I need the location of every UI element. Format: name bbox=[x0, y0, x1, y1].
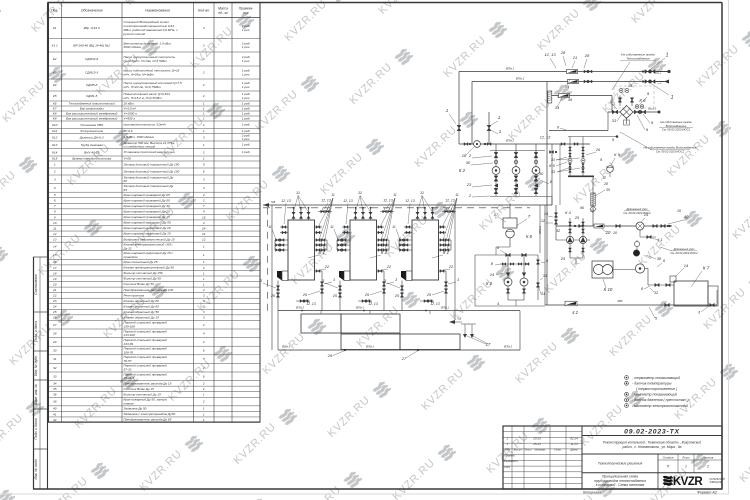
svg-text:производительность 3,0м³/ч: производительность 3,0м³/ч bbox=[124, 123, 167, 127]
svg-text:42: 42 bbox=[53, 418, 57, 422]
svg-text:Ø76к.3: Ø76к.3 bbox=[503, 346, 513, 349]
svg-text:Г1В: Г1В bbox=[457, 317, 462, 321]
svg-text:Лист: Лист bbox=[681, 455, 690, 459]
svg-text:1 рез.: 1 рез. bbox=[242, 59, 250, 63]
svg-text:1: 1 bbox=[203, 123, 205, 127]
svg-text:21: 21 bbox=[52, 288, 57, 292]
svg-text:5: 5 bbox=[203, 163, 205, 167]
svg-text:KVZR: KVZR bbox=[673, 476, 704, 488]
svg-text:V=500 л: V=500 л bbox=[124, 116, 136, 120]
svg-text:35: 35 bbox=[606, 188, 610, 192]
svg-text:Г1В: Г1В bbox=[271, 200, 276, 204]
svg-text:КВр -0,63 К: КВр -0,63 К bbox=[84, 26, 100, 30]
svg-text:СДМ32-6: СДМ32-6 bbox=[85, 57, 98, 61]
svg-text:22: 22 bbox=[52, 294, 57, 298]
svg-text:80: 80 bbox=[124, 179, 128, 183]
svg-text:- датчик давления ( прессост: - датчик давления ( прессостат ) bbox=[632, 398, 689, 402]
svg-text:21: 21 bbox=[201, 232, 206, 236]
svg-text:- датчик температуры: - датчик температуры bbox=[632, 382, 672, 386]
svg-text:13: 13 bbox=[53, 237, 57, 241]
svg-text:Установка приточной вентиляции: Установка приточной вентиляции bbox=[124, 150, 176, 154]
svg-text:18 кВт: 18 кВт bbox=[124, 101, 135, 105]
svg-text:18: 18 bbox=[53, 271, 57, 275]
svg-text:К 1: К 1 bbox=[319, 250, 325, 255]
svg-text:Инв. № подл.: Инв. № подл. bbox=[34, 458, 38, 479]
svg-text:1 рез.: 1 рез. bbox=[242, 28, 250, 32]
svg-text:Стадия: Стадия bbox=[663, 455, 674, 459]
svg-text:1: 1 bbox=[54, 163, 56, 167]
svg-text:12, 13: 12, 13 bbox=[368, 302, 378, 306]
svg-text:ние: ние bbox=[243, 11, 249, 15]
svg-text:76-57: 76-57 bbox=[124, 359, 132, 363]
svg-text:Реконструкция котельной , Тюме: Реконструкция котельной , Тюменская обла… bbox=[603, 441, 701, 445]
svg-text:2: 2 bbox=[202, 94, 205, 98]
svg-text:Ø57к.3: Ø57к.3 bbox=[539, 226, 542, 235]
svg-text:14: 14 bbox=[53, 245, 57, 249]
svg-text:1: 1 bbox=[203, 407, 205, 411]
svg-text:Клапан предохранительный Ду 50: Клапан предохранительный Ду 50 bbox=[124, 266, 175, 270]
svg-text:40: 40 bbox=[684, 215, 689, 220]
svg-text:25: 25 bbox=[332, 294, 338, 298]
svg-text:Кран поливочный Ду 25: Кран поливочный Ду 25 bbox=[124, 260, 158, 264]
svg-text:2: 2 bbox=[202, 340, 205, 344]
svg-text:в котельной . Схема тепловая: в котельной . Схема тепловая bbox=[596, 483, 645, 487]
svg-text:К12: К12 bbox=[52, 135, 58, 139]
svg-text:Теплообменник пластинчатый: Теплообменник пластинчатый bbox=[69, 102, 115, 106]
svg-text:11: 11 bbox=[268, 225, 272, 229]
svg-text:1: 1 bbox=[203, 418, 205, 422]
svg-text:2: 2 bbox=[202, 366, 205, 370]
svg-text:3: 3 bbox=[203, 57, 205, 61]
svg-text:1: 1 bbox=[203, 112, 205, 116]
svg-text:16: 16 bbox=[53, 260, 57, 264]
svg-text:24: 24 bbox=[52, 305, 57, 309]
svg-text:8: 8 bbox=[54, 210, 56, 214]
svg-text:25-23: 25-23 bbox=[532, 442, 541, 446]
svg-text:7: 7 bbox=[203, 204, 205, 208]
svg-text:Ø76к.2: Ø76к.2 bbox=[505, 140, 515, 143]
svg-text:25: 25 bbox=[394, 294, 400, 298]
svg-text:Затвор дисковый поворотный Ду: Затвор дисковый поворотный Ду bbox=[124, 184, 174, 188]
svg-text:38: 38 bbox=[53, 400, 57, 404]
svg-text:30: 30 bbox=[53, 349, 57, 353]
svg-text:район , с. Нововяткина , ул. М: район , с. Нововяткина , ул. Мира , 9а bbox=[622, 445, 682, 449]
svg-text:12, 13: 12, 13 bbox=[544, 52, 556, 57]
svg-text:ед., кг: ед., кг bbox=[218, 11, 228, 15]
svg-text:12: 12 bbox=[53, 232, 57, 236]
svg-text:V=3,0 м³: V=3,0 м³ bbox=[124, 106, 137, 110]
svg-text:28: 28 bbox=[603, 182, 608, 186]
svg-text:ГИП: ГИП bbox=[504, 465, 511, 469]
svg-text:Ду 32: Ду 32 bbox=[123, 246, 132, 250]
svg-text:25: 25 bbox=[302, 293, 308, 297]
svg-text:ручной топкой: ручной топкой bbox=[123, 32, 146, 36]
svg-text:Ø76к.1: Ø76к.1 bbox=[355, 307, 365, 310]
svg-text:1: 1 bbox=[671, 95, 674, 101]
svg-text:Бак запаса воды: Бак запаса воды bbox=[80, 107, 105, 111]
svg-text:Задвижка Ду 50: Задвижка Ду 50 bbox=[124, 407, 147, 411]
svg-text:приводом: приводом bbox=[124, 255, 139, 259]
svg-text:1: 1 bbox=[203, 277, 205, 281]
svg-text:Поз.: Поз. bbox=[51, 9, 58, 13]
svg-text:4: 4 bbox=[497, 302, 499, 306]
svg-text:Кран шаровый приварной Ду 65: Кран шаровый приварной Ду 65 bbox=[124, 193, 171, 197]
svg-text:29: 29 bbox=[52, 340, 57, 344]
svg-text:12: 12 bbox=[602, 176, 606, 180]
svg-text:Инв. № дубл.: Инв. № дубл. bbox=[34, 355, 38, 376]
svg-text:Фильтр сетчатый Ду 50: Фильтр сетчатый Ду 50 bbox=[124, 277, 162, 281]
svg-text:№докум.: №докум. bbox=[534, 448, 545, 452]
svg-text:К 1: К 1 bbox=[381, 250, 387, 255]
svg-text:К 7: К 7 bbox=[703, 266, 710, 271]
svg-text:2: 2 bbox=[202, 150, 205, 154]
svg-text:26: 26 bbox=[595, 148, 601, 152]
svg-text:Ø76к.1: Ø76к.1 bbox=[505, 67, 515, 71]
svg-text:11: 11 bbox=[420, 191, 424, 195]
svg-text:28: 28 bbox=[52, 331, 57, 335]
svg-text:11.23: 11.23 bbox=[570, 442, 578, 446]
svg-text:Кол.уч.: Кол.уч. bbox=[514, 448, 523, 452]
svg-text:Клапан обратный Ду 65: Клапан обратный Ду 65 bbox=[124, 304, 160, 308]
svg-text:02.24: 02.24 bbox=[570, 436, 578, 440]
svg-text:57-32: 57-32 bbox=[124, 368, 132, 372]
svg-text:96: 96 bbox=[580, 206, 584, 210]
svg-text:Преобразователь расхода Ду 100: Преобразователь расхода Ду 100 bbox=[124, 288, 174, 292]
svg-text:11: 11 bbox=[331, 193, 335, 197]
svg-text:4: 4 bbox=[54, 186, 56, 190]
svg-text:Затвор дисковый поворотный Ду: Затвор дисковый поворотный Ду 100 bbox=[124, 169, 180, 173]
svg-text:1: 1 bbox=[203, 271, 205, 275]
svg-text:23: 23 bbox=[52, 299, 57, 303]
svg-text:К3: К3 bbox=[53, 71, 57, 75]
svg-text:6: 6 bbox=[54, 199, 56, 203]
svg-text:27: 27 bbox=[52, 323, 57, 327]
svg-text:25-21,3: 25-21,3 bbox=[123, 376, 135, 380]
svg-text:2: 2 bbox=[202, 193, 205, 197]
svg-text:11: 11 bbox=[296, 191, 300, 195]
svg-text:Кран шаровый муфтовый Ду 15: Кран шаровый муфтовый Ду 15 bbox=[124, 232, 171, 236]
svg-text:Дымосос ДН-6,3: Дымосос ДН-6,3 bbox=[79, 135, 104, 139]
svg-text:2: 2 bbox=[706, 465, 709, 469]
svg-text:28: 28 bbox=[560, 50, 566, 55]
svg-text:ВР 280-46 (ВЦ 14-46) №2: ВР 280-46 (ВЦ 14-46) №2 bbox=[73, 43, 110, 47]
svg-text:Разработ.: Разработ. bbox=[504, 459, 519, 463]
svg-text:25: 25 bbox=[52, 310, 57, 314]
svg-text:1 раб.: 1 раб. bbox=[242, 143, 251, 147]
svg-text:2: 2 bbox=[202, 199, 205, 203]
svg-text:Взам. инв. №: Взам. инв. № bbox=[34, 384, 38, 405]
svg-text:12, 13: 12, 13 bbox=[343, 199, 353, 203]
svg-text:25: 25 bbox=[426, 293, 432, 297]
svg-text:Наименование: Наименование bbox=[145, 9, 170, 13]
svg-text:30: 30 bbox=[539, 171, 544, 176]
svg-text:м³/ч, Н=20,1м, N=0,75кВт: м³/ч, Н=20,1м, N=0,75кВт bbox=[124, 85, 162, 89]
svg-text:17: 17 bbox=[486, 342, 491, 347]
svg-text:- манометр электроконтактный: - манометр электроконтактный bbox=[632, 404, 688, 408]
svg-text:2: 2 bbox=[202, 400, 205, 404]
svg-text:Листов: Листов bbox=[702, 455, 714, 459]
svg-text:4: 4 bbox=[203, 186, 205, 190]
svg-text:4 1: 4 1 bbox=[657, 237, 663, 242]
svg-text:1: 1 bbox=[203, 143, 205, 147]
svg-text:2: 2 bbox=[202, 387, 205, 391]
svg-text:1: 1 bbox=[203, 129, 205, 133]
svg-text:5: 5 bbox=[54, 193, 56, 197]
svg-text:Кран шаровый приварной Ду 40: Кран шаровый приварной Ду 40 bbox=[124, 204, 171, 208]
svg-text:V=1000 л: V=1000 л bbox=[124, 111, 138, 115]
svg-text:Кран шаровый муфтовый Ду 20: Кран шаровый муфтовый Ду 20 bbox=[124, 226, 171, 230]
svg-text:См. 09.02-2023-ИОС2: См. 09.02-2023-ИОС2 bbox=[623, 211, 651, 215]
svg-text:1: 1 bbox=[203, 117, 205, 121]
svg-text:33: 33 bbox=[551, 170, 555, 174]
svg-text:11: 11 bbox=[455, 193, 459, 197]
svg-text:5: 5 bbox=[203, 357, 205, 361]
svg-text:32: 32 bbox=[53, 366, 57, 370]
svg-text:- термометр показывающий: - термометр показывающий bbox=[632, 376, 680, 380]
svg-text:19: 19 bbox=[53, 277, 57, 281]
svg-text:1: 1 bbox=[203, 260, 205, 264]
svg-text:Дата: Дата bbox=[569, 448, 578, 452]
svg-text:Øхх1,6: Øхх1,6 bbox=[647, 107, 656, 110]
svg-text:36: 36 bbox=[568, 97, 573, 102]
svg-text:28: 28 bbox=[584, 53, 590, 58]
svg-text:1 раб.: 1 раб. bbox=[242, 106, 251, 110]
svg-text:4: 4 bbox=[203, 331, 205, 335]
svg-text:7: 7 bbox=[54, 204, 56, 208]
svg-text:3: 3 bbox=[203, 135, 205, 139]
svg-text:30: 30 bbox=[466, 160, 471, 165]
svg-text:4,5 кВт, 1500 об/мин: 4,5 кВт, 1500 об/мин bbox=[124, 135, 155, 139]
svg-text:1: 1 bbox=[203, 253, 205, 257]
svg-text:Ø76к.2: Ø76к.2 bbox=[515, 77, 525, 81]
svg-text:1 раб.: 1 раб. bbox=[242, 150, 251, 154]
svg-text:К 4: К 4 bbox=[565, 210, 571, 215]
svg-text:6: 6 bbox=[203, 374, 205, 378]
svg-text:1 рез.: 1 рез. bbox=[242, 85, 250, 89]
svg-text:К2: К2 bbox=[53, 57, 57, 61]
svg-text:3: 3 bbox=[203, 316, 205, 320]
svg-text:Бак расширительный мембранный: Бак расширительный мембранный bbox=[66, 112, 118, 116]
svg-text:Ø89к.3: Ø89к.3 bbox=[281, 346, 291, 349]
svg-text:См. 09.02-2023-ИОС2: См. 09.02-2023-ИОС2 bbox=[656, 150, 685, 154]
svg-text:159-108: 159-108 bbox=[124, 325, 136, 329]
svg-text:Ø76к.1: Ø76к.1 bbox=[440, 307, 450, 310]
svg-text:Бак расширительный мембранный: Бак расширительный мембранный bbox=[66, 117, 118, 121]
svg-text:Q=32,5м³/ч, Н=13м, N=3,5кВт: Q=32,5м³/ч, Н=13м, N=3,5кВт bbox=[124, 59, 168, 63]
svg-text:9: 9 bbox=[54, 215, 56, 219]
svg-text:СДМ1-5: СДМ1-5 bbox=[86, 94, 98, 98]
svg-text:Кран шаровый приварной Ду 15: Кран шаровый приварной Ду 15 bbox=[124, 215, 171, 219]
svg-text:133-108: 133-108 bbox=[124, 333, 136, 337]
svg-text:31: 31 bbox=[53, 357, 57, 361]
svg-text:12, 13: 12, 13 bbox=[306, 302, 316, 306]
svg-text:15: 15 bbox=[53, 253, 57, 257]
svg-text:Подп. и дата: Подп. и дата bbox=[34, 418, 38, 439]
svg-text:1 рез.: 1 рез. bbox=[242, 96, 250, 100]
svg-text:18: 18 bbox=[462, 153, 467, 158]
svg-text:1 раб.: 1 раб. bbox=[242, 123, 251, 127]
svg-text:133-89: 133-89 bbox=[124, 342, 134, 346]
svg-text:3: 3 bbox=[203, 177, 205, 181]
svg-text:Кран шаровый приварной Ду 50: Кран шаровый приварной Ду 50 bbox=[124, 198, 171, 202]
svg-text:1 рез.: 1 рез. bbox=[242, 45, 250, 49]
svg-text:К15: К15 bbox=[52, 157, 58, 161]
svg-text:1: 1 bbox=[203, 107, 205, 111]
svg-text:20: 20 bbox=[52, 282, 57, 286]
svg-text:Преобразователь расхода Ду 65: Преобразователь расхода Ду 65 bbox=[124, 418, 172, 422]
svg-text:К 3: К 3 bbox=[486, 281, 493, 286]
svg-text:Ø76к.1: Ø76к.1 bbox=[365, 346, 375, 349]
svg-text:Клапан обратный Ду 15: Клапан обратный Ду 15 bbox=[124, 316, 160, 320]
svg-text:Ø89: Ø89 bbox=[617, 300, 623, 303]
svg-text:3: 3 bbox=[54, 177, 56, 181]
svg-text:Обозначение: Обозначение bbox=[81, 9, 103, 13]
svg-text:11: 11 bbox=[330, 225, 334, 229]
svg-text:Согласовано: Согласовано bbox=[34, 274, 38, 295]
svg-text:22: 22 bbox=[386, 265, 392, 269]
svg-text:4: 4 bbox=[203, 210, 205, 214]
svg-text:Затвор дисковый поворотный Ду: Затвор дисковый поворотный Ду 150 bbox=[124, 162, 180, 166]
svg-text:Золоуловитель: Золоуловитель bbox=[80, 129, 103, 133]
svg-text:14: 14 bbox=[684, 263, 689, 268]
svg-text:Фильтр сетчатый Ду 150: Фильтр сетчатый Ду 150 bbox=[124, 271, 163, 275]
svg-text:К5: К5 bbox=[53, 94, 57, 98]
svg-text:К4: К4 bbox=[53, 83, 57, 87]
svg-text:33: 33 bbox=[612, 118, 617, 123]
svg-text:65: 65 bbox=[124, 188, 128, 192]
svg-text:12, 13: 12, 13 bbox=[405, 199, 415, 203]
svg-text:3: 3 bbox=[203, 26, 205, 30]
svg-text:Установка ХВО: Установка ХВО bbox=[80, 123, 104, 127]
svg-text:Копировал: Копировал bbox=[583, 491, 601, 495]
svg-text:К9: К9 bbox=[53, 117, 57, 121]
svg-text:12, 13: 12, 13 bbox=[540, 136, 551, 140]
svg-text:Лист: Лист bbox=[524, 448, 533, 452]
svg-text:6: 6 bbox=[203, 170, 205, 174]
svg-text:Реле протока: Реле протока bbox=[124, 293, 145, 297]
svg-text:См. 09.02-2023-ИОС2: См. 09.02-2023-ИОС2 bbox=[670, 251, 698, 255]
svg-text:34: 34 bbox=[555, 105, 560, 110]
svg-text:2: 2 bbox=[202, 323, 205, 327]
svg-text:1 рез.: 1 рез. bbox=[242, 137, 250, 141]
svg-text:1: 1 bbox=[203, 393, 205, 397]
svg-text:12: 12 bbox=[202, 237, 206, 241]
svg-text:4 2: 4 2 bbox=[572, 310, 578, 315]
svg-text:К 9: К 9 bbox=[614, 152, 620, 157]
svg-text:16: 16 bbox=[202, 215, 206, 219]
svg-text:Технологические решения: Технологические решения bbox=[598, 462, 643, 466]
svg-text:3: 3 bbox=[203, 310, 205, 314]
svg-text:12, 13: 12, 13 bbox=[321, 199, 331, 203]
svg-text:1: 1 bbox=[685, 465, 687, 469]
svg-text:2: 2 bbox=[202, 381, 205, 385]
svg-text:108-76: 108-76 bbox=[124, 350, 134, 354]
svg-text:- манометр показывающий: - манометр показывающий bbox=[632, 393, 677, 397]
svg-text:1: 1 bbox=[203, 157, 205, 161]
svg-text:ЗАВОД.РФ: ЗАВОД.РФ bbox=[710, 481, 722, 484]
svg-text:1: 1 bbox=[203, 412, 205, 416]
svg-text:Изм.: Изм. bbox=[505, 448, 511, 452]
svg-text:33: 33 bbox=[551, 158, 555, 162]
svg-text:1 раб.: 1 раб. bbox=[242, 101, 251, 105]
svg-text:2: 2 bbox=[53, 170, 56, 174]
svg-text:2: 2 bbox=[202, 83, 205, 87]
svg-text:1: 1 bbox=[666, 53, 669, 59]
svg-text:10: 10 bbox=[53, 221, 57, 225]
svg-text:29: 29 bbox=[327, 353, 333, 358]
svg-text:2: 2 bbox=[506, 436, 509, 440]
svg-text:К14: К14 bbox=[52, 150, 58, 154]
svg-text:31: 31 bbox=[541, 291, 545, 296]
svg-text:Воздушник автоматический Ду 15: Воздушник автоматический Ду 15 bbox=[124, 237, 175, 241]
svg-text:Клапан обратный Ду 80: Клапан обратный Ду 80 bbox=[124, 299, 160, 303]
svg-text:Клапан обратный Ду 50: Клапан обратный Ду 50 bbox=[124, 310, 160, 314]
svg-text:11: 11 bbox=[393, 193, 397, 197]
svg-text:24: 24 bbox=[201, 226, 206, 230]
svg-text:Подп.: Подп. bbox=[554, 448, 561, 452]
svg-text:40: 40 bbox=[53, 407, 57, 411]
svg-text:К6: К6 bbox=[53, 102, 57, 106]
svg-text:4: 4 bbox=[203, 221, 205, 225]
svg-text:2: 2 bbox=[202, 305, 205, 309]
svg-text:2: 2 bbox=[202, 266, 205, 270]
svg-text:К 1: К 1 bbox=[443, 250, 449, 255]
svg-text:клапан: клапан bbox=[124, 401, 134, 405]
svg-text:25: 25 bbox=[574, 216, 580, 220]
svg-text:ЗУ-0,6: ЗУ-0,6 bbox=[124, 129, 133, 133]
svg-text:1 раб.: 1 раб. bbox=[242, 111, 251, 115]
svg-text:12, 13: 12, 13 bbox=[281, 199, 291, 203]
svg-text:СДМ15-3: СДМ15-3 bbox=[85, 71, 98, 75]
svg-text:1: 1 bbox=[203, 282, 205, 286]
svg-text:Кран шаровый муфтовый Ду 50: Кран шаровый муфтовый Ду 50 bbox=[124, 221, 171, 225]
svg-text:27: 27 bbox=[401, 356, 407, 361]
svg-text:3000 об/мин: 3000 об/мин bbox=[124, 45, 142, 49]
svg-text:Затвор дисковый поворотный Ду: Затвор дисковый поворотный Ду bbox=[124, 175, 174, 179]
svg-text:3: 3 bbox=[203, 299, 205, 303]
svg-text:23: 23 bbox=[466, 182, 472, 187]
svg-text:ВНУ-40-01: ВНУ-40-01 bbox=[84, 150, 99, 154]
svg-text:36: 36 bbox=[53, 393, 57, 397]
svg-text:Труба дымовая: Труба дымовая bbox=[81, 143, 103, 147]
svg-text:К 5: К 5 bbox=[549, 164, 555, 168]
svg-text:25: 25 bbox=[560, 257, 566, 261]
svg-text:из сэндвичных секций: из сэндвичных секций bbox=[124, 145, 156, 149]
svg-text:Подп. и дата: Подп. и дата bbox=[34, 321, 38, 342]
svg-text:К 8: К 8 bbox=[526, 234, 533, 239]
svg-text:К7: К7 bbox=[53, 107, 57, 111]
svg-text:26: 26 bbox=[52, 316, 57, 320]
svg-text:35: 35 bbox=[53, 387, 57, 391]
svg-text:12, 13: 12, 13 bbox=[445, 199, 455, 203]
svg-text:Счетчик Воды Ду 50: Счетчик Воды Ду 50 bbox=[124, 282, 155, 286]
svg-text:Счетчик Воды Ду 15: Счетчик Воды Ду 15 bbox=[124, 387, 155, 391]
svg-text:22: 22 bbox=[324, 265, 330, 269]
svg-text:К8: К8 bbox=[53, 112, 57, 116]
svg-text:12, 13: 12, 13 bbox=[430, 302, 440, 306]
svg-text:Задвижка с электроприводом Ду5: Задвижка с электроприводом Ду50 bbox=[124, 412, 176, 416]
svg-text:6: 6 bbox=[203, 349, 205, 353]
svg-text:Дренажный узел: Дренажный узел bbox=[673, 247, 695, 251]
svg-text:11: 11 bbox=[392, 225, 396, 229]
svg-text:21: 21 bbox=[572, 55, 577, 60]
svg-text:11: 11 bbox=[53, 226, 56, 230]
svg-text:СДМ5-8: СДМ5-8 bbox=[86, 83, 98, 87]
svg-text:м³/ч, Н=26м, N=3кВт: м³/ч, Н=26м, N=3кВт bbox=[124, 72, 155, 76]
svg-text:м³/ч, Н=15,2 м, N=0,37кВт: м³/ч, Н=15,2 м, N=0,37кВт bbox=[124, 96, 163, 100]
svg-text:Преобразователь расхода Ду 15: Преобразователь расхода Ду 15 bbox=[124, 381, 172, 385]
svg-text:34: 34 bbox=[53, 381, 57, 385]
